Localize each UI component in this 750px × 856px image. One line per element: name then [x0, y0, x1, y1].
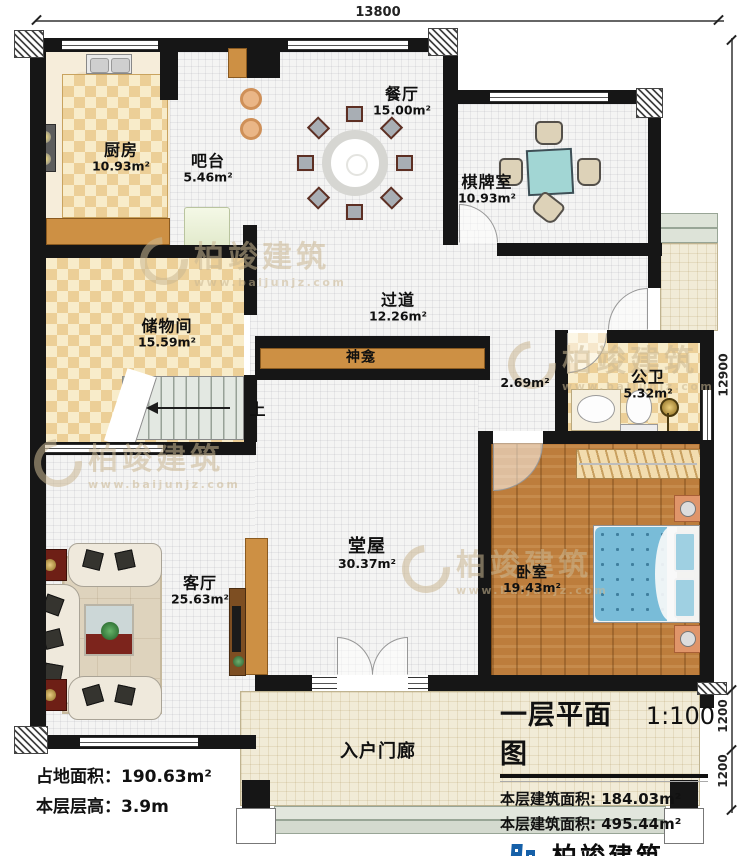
plant-small	[233, 656, 244, 667]
porch-column	[242, 780, 270, 808]
wall-bar-dining	[247, 48, 280, 78]
total-area-row: 本层建筑面积: 495.44m²	[500, 813, 715, 834]
bathroom-window	[702, 390, 712, 440]
bathroom-sink	[577, 395, 615, 423]
wall-bar-storage	[30, 245, 257, 258]
coffee-table	[84, 604, 134, 656]
stair-arrow-head	[146, 402, 158, 414]
total-area-value: 495.44m²	[601, 815, 681, 833]
room-label-dining: 餐厅 15.00m²	[373, 85, 431, 116]
land-area-value: 190.63m²	[121, 767, 212, 787]
tv-feature-wall	[245, 538, 268, 675]
floor-drain	[660, 398, 679, 417]
floor-height-value: 3.9m	[121, 797, 169, 817]
chess-chair	[535, 121, 563, 145]
brand-name: 柏竣建筑	[552, 844, 709, 856]
floor-height-label: 本层层高：	[36, 797, 121, 817]
wardrobe-rod	[579, 463, 697, 465]
room-label-porch: 入户门廊	[340, 742, 416, 762]
bed-pillow	[674, 578, 696, 618]
wardrobe	[576, 449, 702, 479]
dining-window	[288, 40, 408, 50]
side-entry-landing	[660, 243, 718, 331]
room-label-chess: 棋牌室 10.93m²	[458, 173, 516, 204]
shrine-area-label: 2.69m²	[500, 376, 549, 390]
wall-kitchen-bar-stub	[160, 38, 178, 100]
dimension-line-top	[36, 20, 724, 22]
wall-dining-chess	[443, 38, 458, 245]
dining-chair	[346, 204, 363, 220]
floor-height-line: 本层层高：3.9m	[36, 792, 169, 817]
floor-area-value: 184.03m²	[601, 790, 681, 808]
room-label-living: 客厅 25.63m²	[171, 574, 229, 605]
wall-hall-bottom-a	[255, 675, 312, 691]
kitchen-sink	[86, 54, 132, 74]
living-room-window	[80, 737, 198, 747]
hall-window-right	[408, 677, 428, 689]
floor-area-row: 本层建筑面积: 184.03m²	[500, 788, 715, 809]
corner-hatch-marker	[14, 30, 44, 58]
room-name: 厨房	[92, 141, 150, 159]
stair-direction-arrow	[158, 407, 230, 409]
dining-table-center	[346, 154, 368, 176]
television	[232, 606, 241, 652]
dimension-right-seg2: 1200	[716, 754, 730, 787]
room-area: 2.69m²	[500, 376, 549, 390]
plant	[101, 622, 119, 640]
land-area-line: 占地面积：190.63m²	[36, 762, 212, 787]
room-name: 入户门廊	[340, 742, 416, 762]
room-name: 公卫	[623, 368, 672, 386]
dining-chair	[346, 106, 363, 122]
room-label-kitchen: 厨房 10.93m²	[92, 141, 150, 172]
room-area: 5.46m²	[183, 170, 232, 184]
brand-logo-icon	[500, 840, 544, 856]
room-label-corridor: 过道 12.26m²	[369, 291, 427, 322]
chess-room-window	[490, 92, 608, 102]
side-entry-step	[660, 213, 718, 228]
bar-counter-top	[228, 48, 247, 78]
stairs-up-label: 上	[249, 401, 266, 419]
plan-title: 一层平面图	[500, 693, 634, 771]
room-area: 12.26m²	[369, 309, 427, 323]
room-name: 储物间	[138, 317, 196, 335]
room-name: 餐厅	[373, 85, 431, 103]
bar-stool	[240, 88, 262, 110]
storage-living-opening	[45, 444, 163, 453]
room-label-storage: 储物间 15.59m²	[138, 317, 196, 348]
corner-hatch-marker	[636, 88, 663, 118]
wall-bedroom-top-b	[543, 431, 714, 444]
wall-east-stub	[648, 252, 661, 288]
dimension-right-main: 12900	[716, 353, 731, 397]
room-name: 棋牌室	[458, 173, 516, 191]
sink-basin	[111, 58, 130, 73]
room-label-bathroom: 公卫 5.32m²	[623, 368, 672, 399]
wall-hall-bedroom-bottom	[428, 675, 714, 691]
corner-hatch-marker	[14, 726, 48, 754]
room-area: 5.32m²	[623, 386, 672, 400]
corner-hatch-marker	[428, 28, 458, 56]
room-area: 10.93m²	[458, 191, 516, 205]
wall-bedroom-left	[478, 431, 491, 689]
room-label-hall: 堂屋 30.37m²	[338, 537, 396, 571]
room-name: 过道	[369, 291, 427, 309]
room-label-bar: 吧台 5.46m²	[183, 152, 232, 183]
wall-bar-stub-vertical	[243, 225, 257, 258]
dimension-line-right	[731, 38, 733, 813]
dining-chair	[396, 155, 413, 171]
room-area: 10.93m²	[92, 159, 150, 173]
land-area-label: 占地面积：	[36, 767, 121, 787]
room-name: 客厅	[171, 574, 229, 592]
brand-logo-row: 柏竣建筑 www.baijunjz.com	[500, 840, 715, 856]
wall-bath-top	[607, 330, 714, 343]
floor-corridor-hall	[250, 230, 478, 675]
room-label-shrine: 神龛	[346, 350, 376, 365]
dimension-right-seg1: 1200	[716, 699, 730, 732]
dining-chair	[297, 155, 314, 171]
room-area: 15.59m²	[138, 335, 196, 349]
sofa-pillow	[114, 549, 135, 570]
room-area: 15.00m²	[373, 103, 431, 117]
room-name: 卧室	[503, 564, 561, 581]
wall-outer-right	[700, 330, 714, 708]
hall-window-left	[312, 677, 337, 689]
chess-table	[526, 148, 574, 196]
room-area: 25.63m²	[171, 592, 229, 606]
wall-outer-left	[30, 38, 46, 748]
kitchen-counter	[46, 218, 170, 245]
room-label-bedroom: 卧室 19.43m²	[503, 564, 561, 594]
stairs-up-text: 上	[249, 401, 266, 419]
bed-pillow	[674, 532, 696, 572]
floor-plan-canvas: 13800 12900 1200 1200	[0, 0, 750, 856]
room-name: 吧台	[183, 152, 232, 170]
sofa-pillow	[114, 684, 135, 705]
dimension-top-label: 13800	[355, 5, 400, 20]
sink-basin	[90, 58, 109, 73]
title-block: 一层平面图 1:100 本层建筑面积: 184.03m² 本层建筑面积: 495…	[500, 693, 715, 856]
chess-chair	[577, 158, 601, 186]
bar-stool	[240, 118, 262, 140]
title-underline-thin	[500, 781, 708, 782]
room-area: 19.43m²	[503, 580, 561, 594]
total-area-label: 本层建筑面积:	[500, 815, 596, 833]
side-entry-step	[660, 228, 718, 243]
title-underline-thick	[500, 774, 708, 778]
porch-column-base	[236, 808, 276, 844]
plan-scale: 1:100	[646, 702, 715, 730]
floor-area-label: 本层建筑面积:	[500, 790, 596, 808]
wall-storage-right-upper	[244, 258, 257, 315]
kitchen-window	[62, 40, 158, 50]
room-area: 30.37m²	[338, 557, 396, 571]
nightstand	[674, 495, 701, 522]
wall-chess-bottom	[497, 243, 662, 256]
room-name: 堂屋	[338, 537, 396, 557]
room-name: 神龛	[346, 350, 376, 365]
nightstand	[674, 625, 701, 653]
